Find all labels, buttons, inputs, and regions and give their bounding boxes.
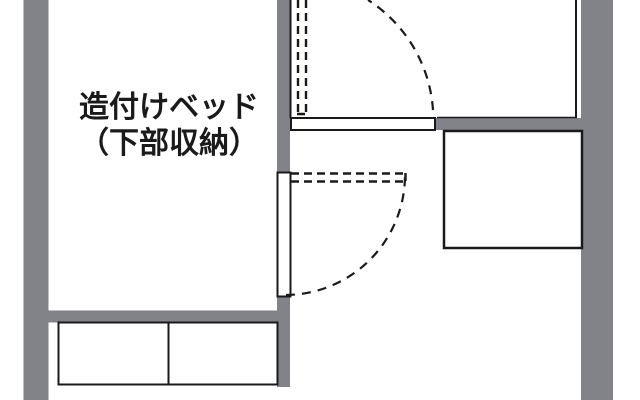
bed-label-line1: 造付けベッド [30, 90, 308, 126]
bed-label: 造付けベッド （下部収納） [30, 90, 308, 162]
top-door-leaf [291, 118, 435, 130]
top-door-swing-arc [368, 0, 433, 110]
right-room-fixture-box [444, 131, 582, 248]
floor-plan: 造付けベッド （下部収納） [0, 0, 640, 400]
bed-label-line2: （下部収納） [30, 126, 308, 162]
wall-left [24, 0, 49, 400]
middle-door-open-position [291, 173, 406, 182]
middle-door-swing-arc [286, 177, 405, 295]
wall-right [581, 0, 613, 400]
wall-bedroom-bottom [48, 311, 282, 323]
wall-top-right [435, 118, 581, 130]
middle-door-leaf [278, 173, 291, 297]
